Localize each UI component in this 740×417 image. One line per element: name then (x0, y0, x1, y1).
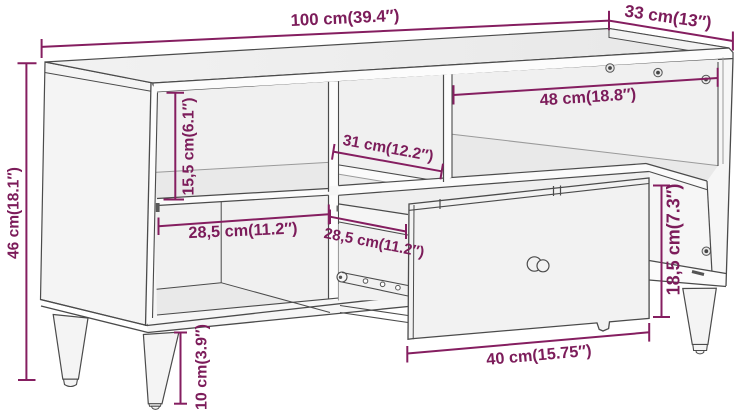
svg-text:10 cm(3.9″): 10 cm(3.9″) (194, 324, 211, 410)
svg-text:15,5 cm(6.1″): 15,5 cm(6.1″) (181, 97, 198, 195)
svg-text:46 cm(18.1″): 46 cm(18.1″) (6, 167, 23, 259)
svg-text:18,5 cm(7.3″): 18,5 cm(7.3″) (663, 184, 683, 296)
